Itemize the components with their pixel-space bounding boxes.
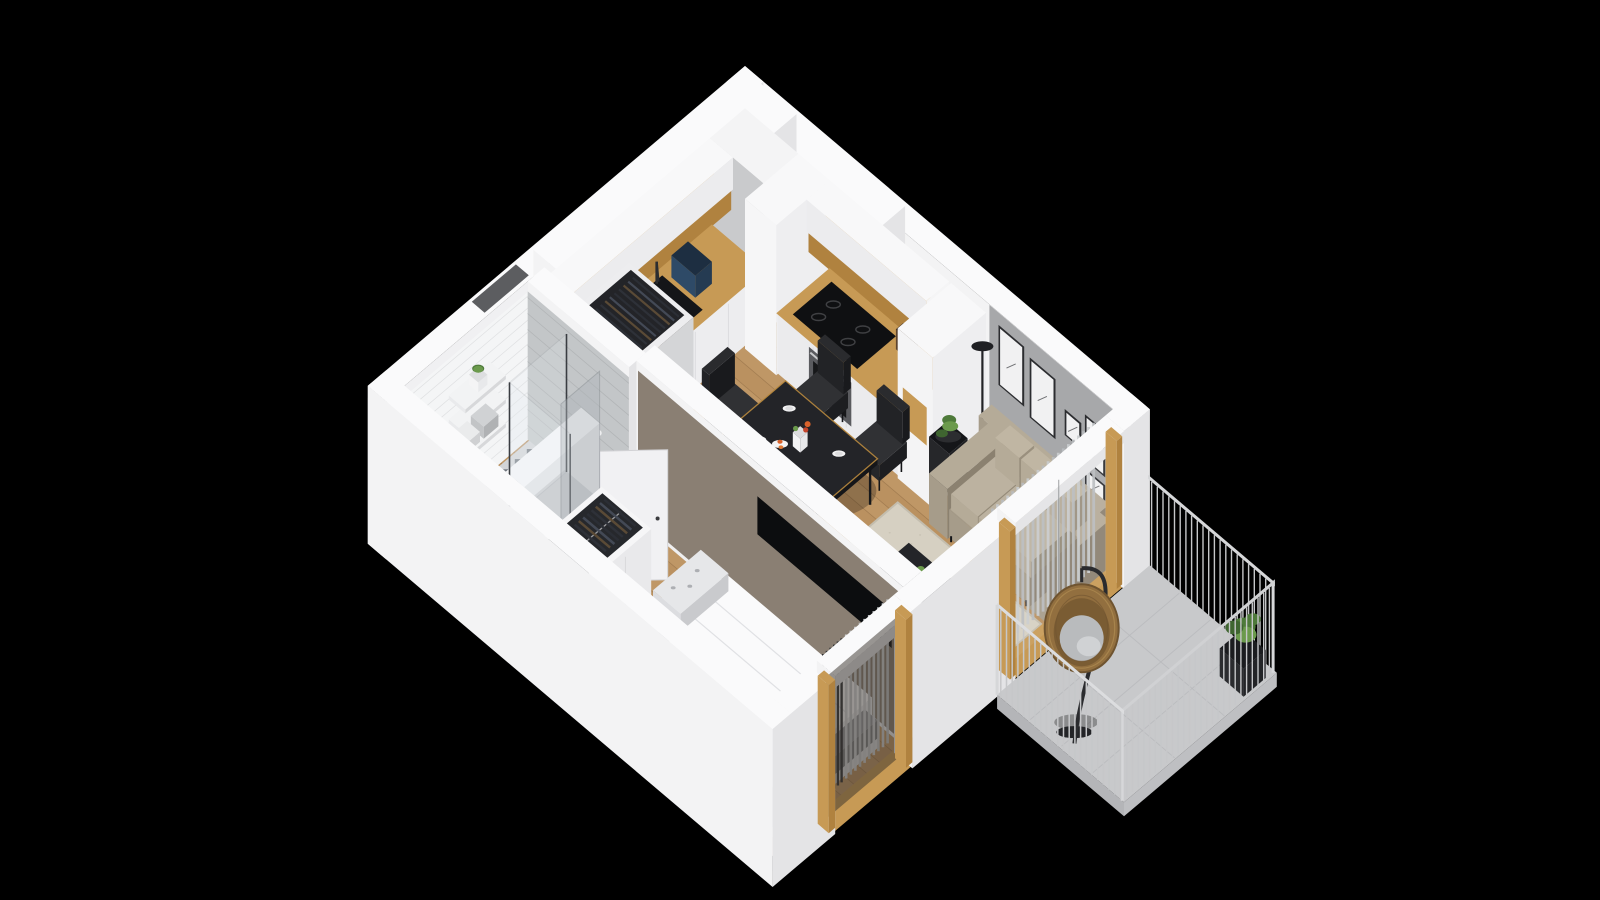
floorplan-render — [0, 0, 1600, 900]
apartment — [368, 66, 1277, 887]
apartment-isometric-scene — [0, 0, 1600, 900]
